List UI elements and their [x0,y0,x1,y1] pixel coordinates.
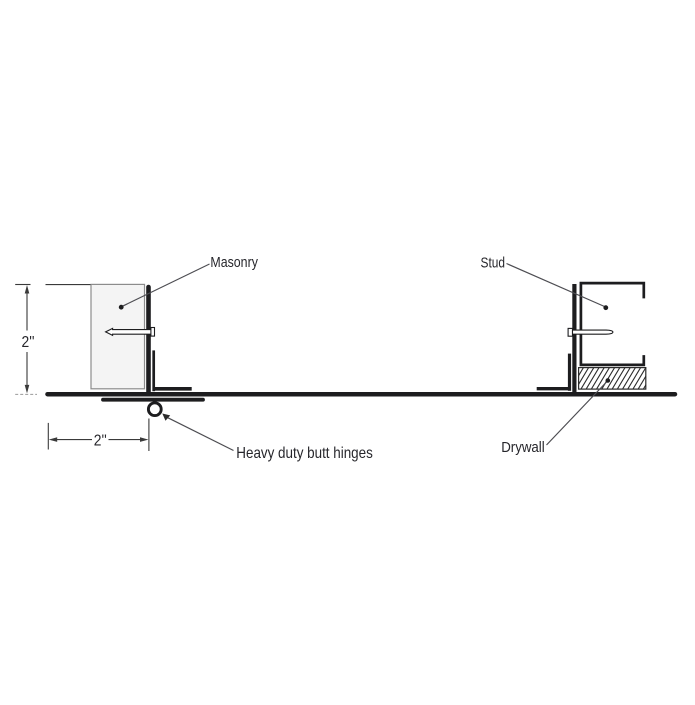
svg-text:2'': 2'' [94,433,107,450]
svg-text:Stud: Stud [481,254,506,271]
svg-text:Drywall: Drywall [501,439,545,456]
svg-text:Masonry: Masonry [210,254,258,271]
svg-text:2'': 2'' [22,334,35,351]
svg-text:Heavy duty butt hinges: Heavy duty butt hinges [236,445,372,462]
